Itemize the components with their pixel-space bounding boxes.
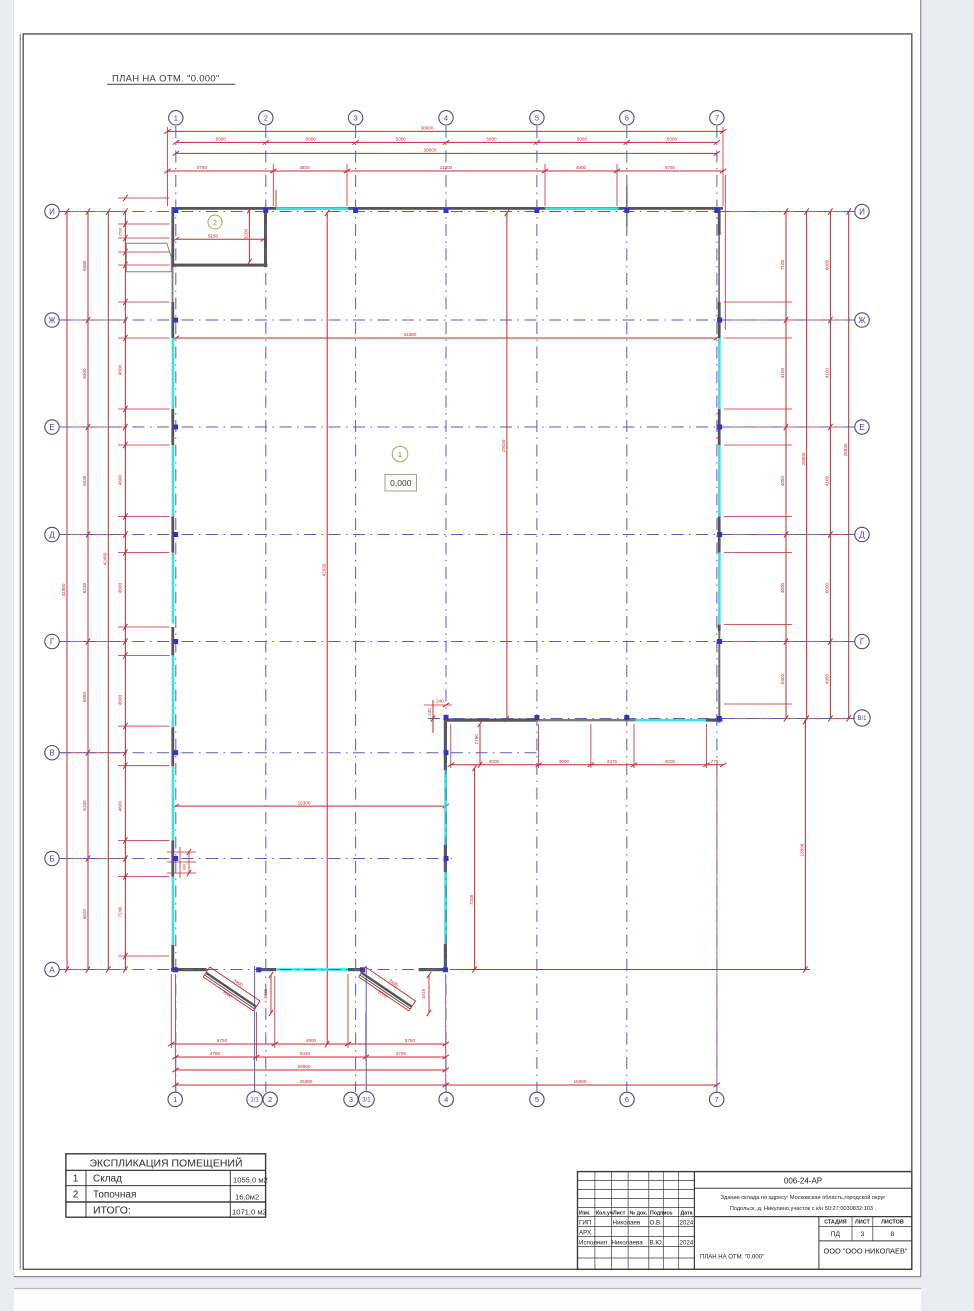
svg-text:1/1: 1/1	[250, 1098, 259, 1104]
svg-text:5150: 5150	[208, 234, 219, 239]
svg-text:ИТОГО:: ИТОГО:	[93, 1205, 131, 1217]
svg-text:ЛИСТ: ЛИСТ	[855, 1220, 870, 1226]
svg-text:7: 7	[715, 1095, 719, 1104]
svg-text:3000: 3000	[559, 759, 570, 764]
svg-text:1: 1	[398, 450, 402, 459]
svg-text:Лист: Лист	[613, 1211, 626, 1217]
svg-text:5750: 5750	[217, 1038, 228, 1043]
svg-text:2: 2	[268, 1095, 272, 1104]
svg-text:4100: 4100	[825, 367, 830, 378]
svg-text:42030: 42030	[321, 563, 326, 576]
svg-text:1815: 1815	[421, 988, 426, 999]
svg-text:4: 4	[444, 114, 448, 123]
svg-text:5: 5	[535, 114, 539, 123]
svg-text:900: 900	[183, 864, 187, 870]
svg-text:АРХ.: АРХ.	[579, 1230, 593, 1237]
svg-text:6380: 6380	[82, 260, 87, 271]
svg-text:Подольск, д. Никулино,участок: Подольск, д. Никулино,участок с к/н 50:2…	[730, 1206, 877, 1212]
svg-text:4780: 4780	[210, 1051, 221, 1056]
svg-text:5000: 5000	[396, 137, 407, 142]
svg-text:34380: 34380	[404, 332, 417, 337]
svg-text:28930: 28930	[843, 443, 848, 456]
svg-text:1055,0 м2: 1055,0 м2	[233, 1176, 268, 1185]
svg-text:42480: 42480	[103, 552, 108, 565]
svg-text:4000: 4000	[489, 759, 500, 764]
svg-text:4950: 4950	[825, 673, 830, 684]
svg-text:4100: 4100	[825, 475, 830, 486]
svg-text:775: 775	[711, 759, 719, 764]
svg-text:ЛИСТОВ: ЛИСТОВ	[881, 1220, 904, 1226]
svg-text:4000: 4000	[665, 759, 676, 764]
svg-text:7196: 7196	[118, 906, 123, 917]
svg-text:006-24-АР: 006-24-АР	[784, 1177, 822, 1186]
svg-text:4600: 4600	[118, 474, 123, 485]
svg-text:В/1: В/1	[857, 716, 867, 722]
svg-text:15000: 15000	[574, 1079, 587, 1084]
svg-text:3200: 3200	[244, 228, 249, 239]
svg-text:4600: 4600	[118, 582, 123, 593]
svg-text:25380: 25380	[300, 1079, 313, 1084]
svg-text:6520: 6520	[82, 908, 87, 919]
svg-text:Ж: Ж	[858, 316, 866, 325]
svg-text:2024: 2024	[680, 1240, 694, 1247]
svg-text:6: 6	[625, 114, 629, 123]
svg-text:4600: 4600	[118, 800, 123, 811]
svg-text:И: И	[859, 207, 865, 216]
svg-text:8: 8	[891, 1231, 895, 1238]
svg-text:Николаев: Николаев	[613, 1220, 641, 1227]
svg-text:3: 3	[349, 1095, 353, 1104]
svg-text:5000: 5000	[577, 137, 588, 142]
svg-text:5000: 5000	[306, 137, 317, 142]
svg-text:Г: Г	[860, 637, 865, 646]
svg-text:Здание склада по адресу: Моско: Здание склада по адресу: Московская обла…	[721, 1194, 886, 1201]
svg-text:1: 1	[173, 1095, 177, 1104]
svg-text:ГИП: ГИП	[579, 1220, 591, 1227]
svg-text:4600: 4600	[118, 694, 123, 705]
svg-text:3: 3	[354, 114, 358, 123]
svg-text:6: 6	[625, 1095, 629, 1104]
svg-text:Е: Е	[49, 423, 54, 432]
svg-text:В: В	[49, 749, 54, 758]
svg-text:6180: 6180	[82, 800, 87, 811]
svg-text:15300: 15300	[298, 800, 311, 805]
svg-text:Подпись: Подпись	[650, 1211, 673, 1217]
svg-text:6300: 6300	[82, 368, 87, 379]
svg-text:30000: 30000	[424, 148, 437, 153]
svg-text:2024: 2024	[680, 1220, 694, 1227]
svg-text:240: 240	[436, 699, 444, 704]
svg-text:5: 5	[535, 1095, 539, 1104]
svg-text:И: И	[49, 207, 55, 216]
svg-text:Дата: Дата	[681, 1211, 693, 1217]
svg-text:ПЛАН НА ОТМ. "0.000": ПЛАН НА ОТМ. "0.000"	[112, 74, 220, 85]
svg-text:2790: 2790	[474, 734, 479, 745]
svg-text:Николаева: Николаева	[612, 1240, 644, 1247]
svg-text:5000: 5000	[216, 137, 227, 142]
svg-text:Кол.уч: Кол.уч	[596, 1211, 613, 1217]
svg-text:1815: 1815	[263, 988, 268, 999]
svg-text:4: 4	[444, 1095, 448, 1104]
svg-text:5750: 5750	[665, 165, 676, 170]
svg-text:6330: 6330	[82, 475, 87, 486]
svg-text:25800: 25800	[298, 1064, 311, 1069]
svg-text:Е: Е	[859, 423, 864, 432]
svg-text:5750: 5750	[197, 165, 208, 170]
svg-text:СТАДИЯ: СТАДИЯ	[824, 1220, 847, 1226]
svg-text:5300: 5300	[780, 673, 785, 684]
svg-text:2: 2	[213, 220, 217, 227]
svg-text:В.Ю.: В.Ю.	[650, 1240, 664, 1247]
svg-text:4050: 4050	[780, 475, 785, 486]
svg-text:2: 2	[73, 1190, 79, 1201]
svg-text:4600: 4600	[118, 364, 123, 375]
svg-text:ПЛАН НА ОТМ. "0.000": ПЛАН НА ОТМ. "0.000"	[700, 1255, 764, 1261]
svg-text:Б: Б	[49, 854, 54, 863]
svg-text:Топочная: Топочная	[93, 1190, 136, 1201]
svg-text:А: А	[49, 965, 55, 974]
svg-text:41950: 41950	[61, 583, 66, 596]
svg-text:О.В.: О.В.	[650, 1220, 663, 1227]
svg-text:ПД: ПД	[831, 1231, 841, 1238]
svg-text:Изм.: Изм.	[579, 1211, 591, 1217]
svg-text:Ж: Ж	[48, 316, 56, 325]
svg-text:1071,0 м2: 1071,0 м2	[232, 1208, 267, 1217]
svg-text:Д: Д	[49, 530, 55, 539]
svg-text:7: 7	[715, 114, 719, 123]
svg-text:6000: 6000	[825, 259, 830, 270]
svg-text:28500: 28500	[801, 452, 806, 465]
svg-text:5750: 5750	[405, 1038, 416, 1043]
svg-text:Склад: Склад	[93, 1174, 122, 1185]
svg-text:3/1: 3/1	[362, 1098, 371, 1104]
svg-text:1: 1	[73, 1174, 79, 1185]
svg-text:6580: 6580	[82, 692, 87, 703]
svg-text:4100: 4100	[780, 367, 785, 378]
svg-text:ООО "ООО НИКОЛАЕВ": ООО "ООО НИКОЛАЕВ"	[823, 1247, 907, 1256]
svg-text:4780: 4780	[396, 1051, 407, 1056]
svg-text:4800: 4800	[576, 165, 587, 170]
svg-text:№ док.: № док.	[630, 1211, 648, 1217]
svg-text:6000: 6000	[825, 582, 830, 593]
svg-text:240: 240	[427, 708, 432, 716]
svg-text:29030: 29030	[501, 439, 506, 452]
svg-text:16,0м2: 16,0м2	[235, 1193, 259, 1202]
svg-text:5000: 5000	[667, 137, 678, 142]
svg-text:Г: Г	[50, 637, 55, 646]
svg-text:38000: 38000	[421, 126, 434, 131]
svg-text:2375: 2375	[607, 759, 618, 764]
svg-text:4800: 4800	[299, 165, 310, 170]
svg-text:7208: 7208	[469, 894, 474, 905]
svg-text:4600: 4600	[780, 582, 785, 593]
svg-text:Д: Д	[859, 530, 865, 539]
svg-text:4800: 4800	[306, 1038, 317, 1043]
svg-text:2: 2	[264, 114, 268, 123]
svg-text:5430: 5430	[300, 1051, 311, 1056]
svg-text:7100: 7100	[780, 259, 785, 270]
svg-text:ЭКСПЛИКАЦИЯ ПОМЕЩЕНИЙ: ЭКСПЛИКАЦИЯ ПОМЕЩЕНИЙ	[89, 1157, 242, 1170]
svg-text:0,000: 0,000	[390, 478, 412, 488]
svg-text:2500: 2500	[119, 228, 123, 236]
svg-text:3: 3	[861, 1231, 865, 1238]
svg-text:6230: 6230	[82, 582, 87, 593]
svg-text:Исполнил: Исполнил	[579, 1240, 608, 1247]
svg-text:1: 1	[174, 114, 178, 123]
svg-text:5000: 5000	[486, 137, 497, 142]
svg-text:13596: 13596	[800, 843, 805, 856]
